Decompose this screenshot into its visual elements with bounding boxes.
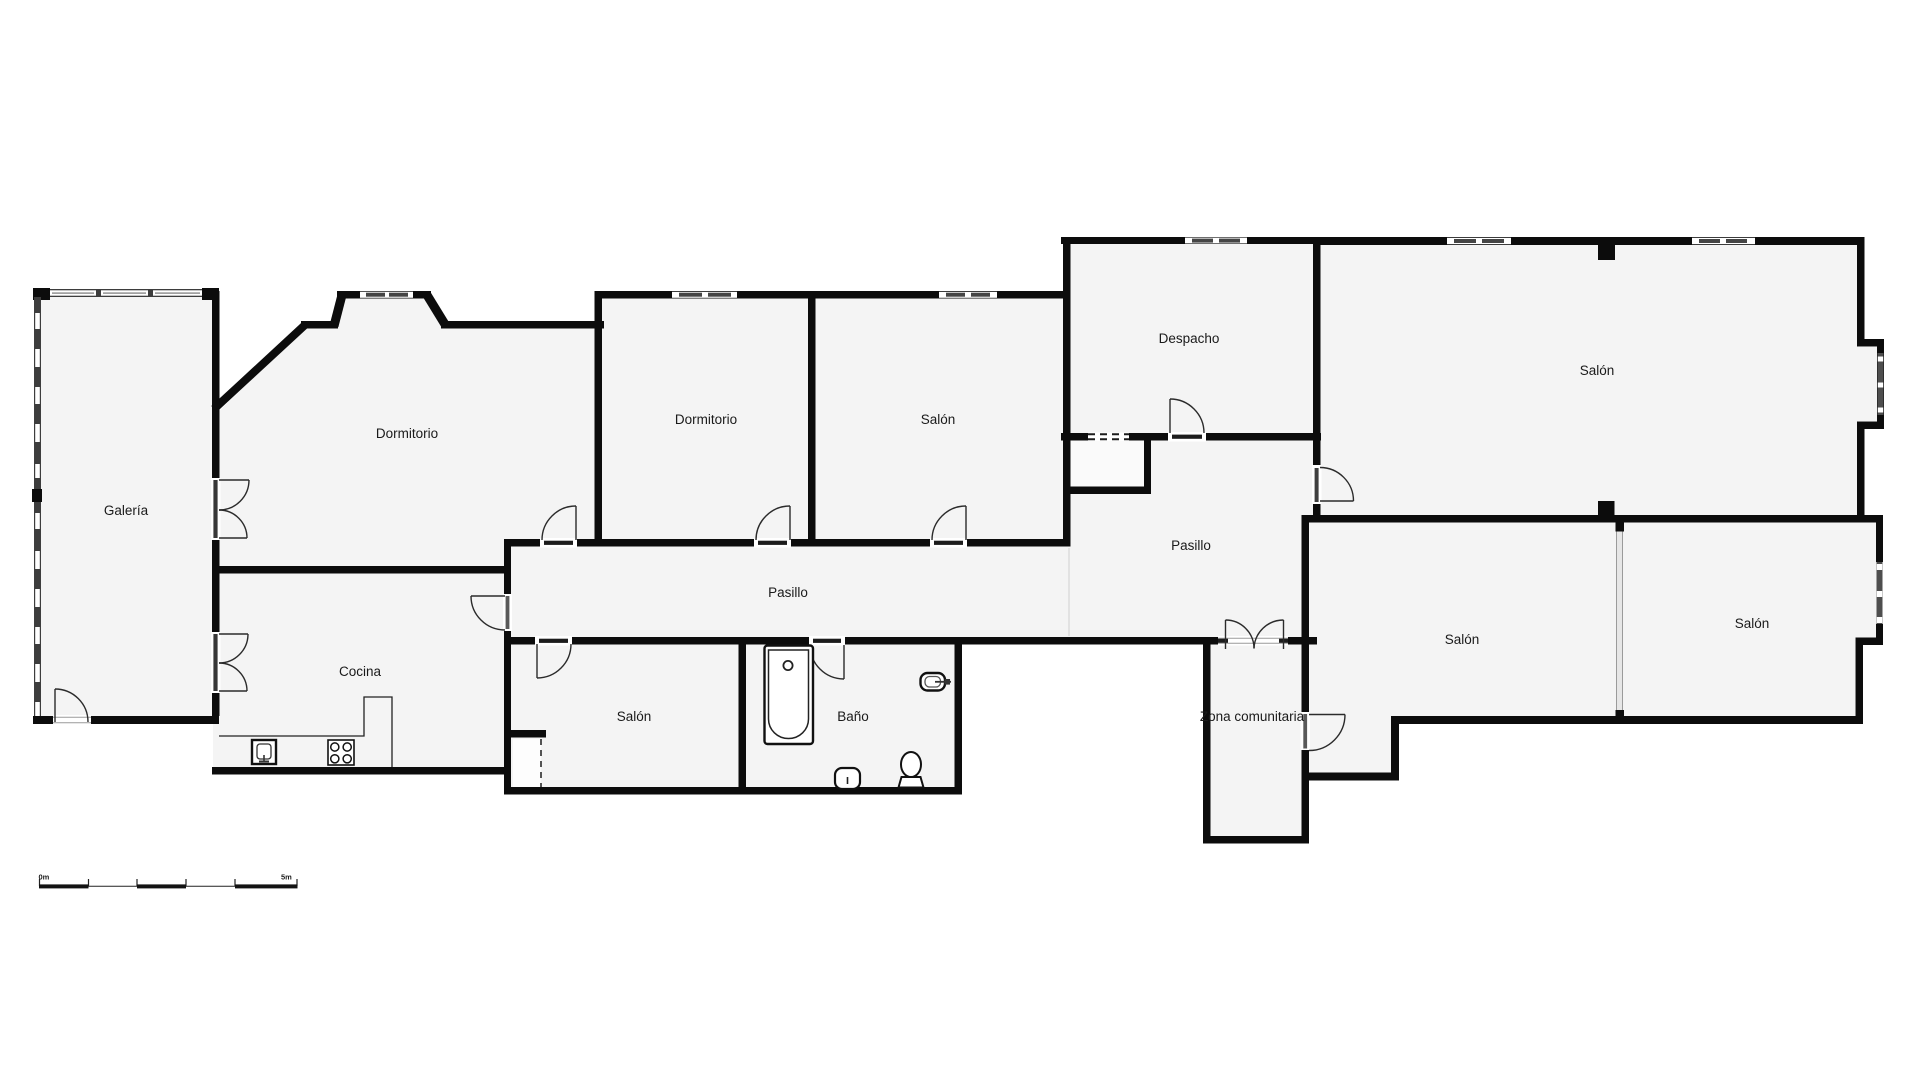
svg-text:Salón: Salón <box>1580 363 1615 378</box>
svg-text:Galería: Galería <box>104 503 149 518</box>
svg-text:5m: 5m <box>281 873 292 882</box>
svg-text:Pasillo: Pasillo <box>1171 538 1211 553</box>
svg-text:Dormitorio: Dormitorio <box>376 426 438 441</box>
svg-text:Salón: Salón <box>921 412 956 427</box>
svg-text:Salón: Salón <box>617 709 652 724</box>
svg-text:Cocina: Cocina <box>339 664 382 679</box>
svg-text:Dormitorio: Dormitorio <box>675 412 737 427</box>
svg-text:Salón: Salón <box>1445 632 1480 647</box>
svg-text:Salón: Salón <box>1735 616 1770 631</box>
svg-text:Despacho: Despacho <box>1159 331 1220 346</box>
svg-text:Zona comunitaria: Zona comunitaria <box>1200 709 1305 724</box>
svg-text:Baño: Baño <box>837 709 869 724</box>
svg-text:0m: 0m <box>39 873 50 882</box>
svg-text:Pasillo: Pasillo <box>768 585 808 600</box>
